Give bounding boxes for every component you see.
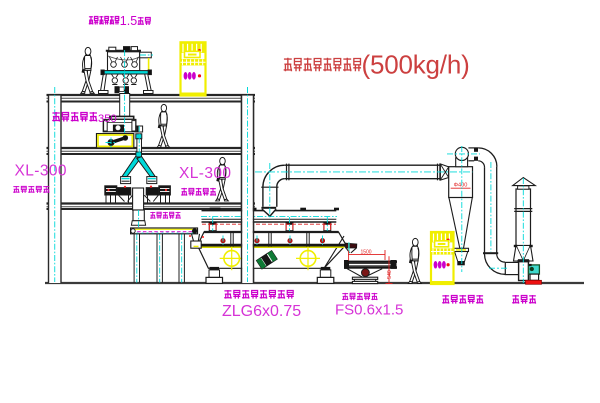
svg-text:(500kg/h): (500kg/h): [362, 50, 470, 80]
svg-text:1500: 1500: [360, 250, 371, 256]
svg-text:ZLG6x0.75: ZLG6x0.75: [222, 303, 301, 320]
svg-text:FS0.6x1.5: FS0.6x1.5: [335, 302, 403, 319]
svg-text:350: 350: [98, 113, 117, 125]
svg-text:1.5: 1.5: [120, 14, 137, 28]
svg-text:540: 540: [387, 270, 393, 279]
svg-text:XL-300: XL-300: [179, 165, 231, 182]
svg-text:XL-300: XL-300: [15, 163, 67, 180]
svg-text:Φ400: Φ400: [454, 183, 468, 189]
